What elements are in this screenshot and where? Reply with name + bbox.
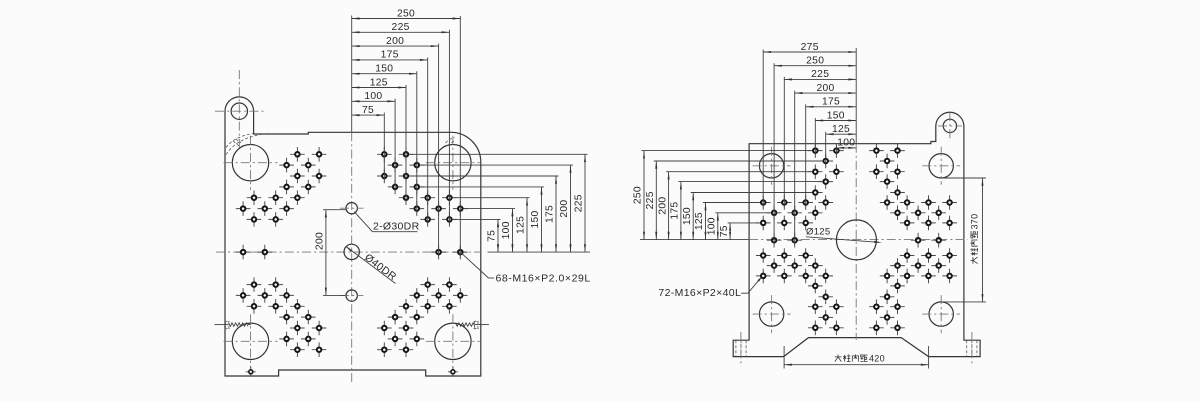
svg-text:125: 125: [370, 77, 388, 88]
svg-text:Ø125: Ø125: [806, 227, 830, 238]
svg-text:2-Ø30DR: 2-Ø30DR: [373, 221, 420, 233]
svg-text:125: 125: [516, 216, 527, 234]
svg-text:250: 250: [397, 8, 415, 19]
svg-text:100: 100: [837, 138, 855, 149]
svg-text:370: 370: [970, 214, 980, 230]
svg-text:200: 200: [559, 200, 570, 218]
svg-text:250: 250: [806, 56, 824, 67]
svg-text:225: 225: [574, 194, 585, 212]
svg-text:75: 75: [362, 105, 374, 116]
svg-text:68-M16×P2.0×29L: 68-M16×P2.0×29L: [496, 273, 591, 285]
svg-text:200: 200: [314, 232, 325, 250]
svg-text:125: 125: [694, 212, 705, 230]
svg-text:250: 250: [633, 186, 644, 204]
svg-text:200: 200: [386, 36, 404, 47]
svg-text:150: 150: [375, 64, 393, 75]
svg-text:150: 150: [827, 110, 845, 121]
svg-text:75: 75: [719, 225, 730, 237]
svg-text:175: 175: [545, 205, 556, 223]
svg-text:72-M16×P2×40L: 72-M16×P2×40L: [658, 287, 741, 299]
svg-text:225: 225: [392, 22, 410, 33]
svg-text:175: 175: [381, 50, 399, 61]
svg-text:200: 200: [657, 197, 668, 215]
svg-text:150: 150: [530, 210, 541, 228]
svg-text:100: 100: [364, 91, 382, 102]
svg-text:125: 125: [832, 124, 850, 135]
svg-text:100: 100: [707, 217, 718, 235]
svg-text:275: 275: [801, 42, 819, 53]
svg-text:100: 100: [501, 221, 512, 239]
svg-text:175: 175: [822, 97, 840, 108]
svg-text:420: 420: [869, 354, 885, 364]
svg-text:225: 225: [645, 191, 656, 209]
svg-text:225: 225: [811, 69, 829, 80]
svg-text:175: 175: [670, 202, 681, 220]
svg-text:75: 75: [487, 230, 498, 242]
svg-text:200: 200: [816, 83, 834, 94]
svg-text:150: 150: [682, 207, 693, 225]
